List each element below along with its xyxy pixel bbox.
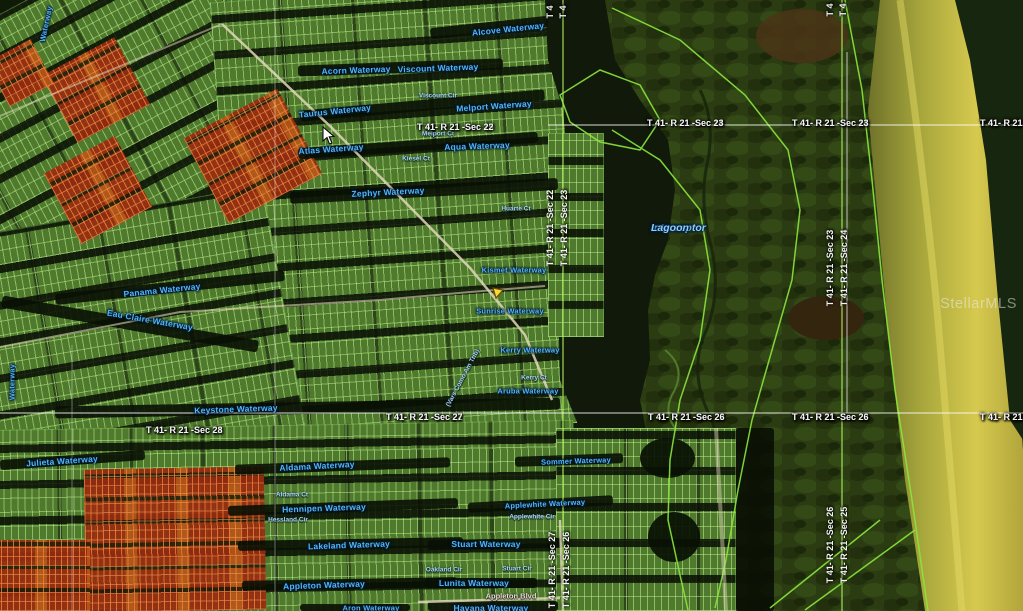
aerial-parcel-map[interactable]: Alcove WaterwayAcorn WaterwayViscount Wa…: [0, 0, 1023, 611]
grid-overlay-layer: [0, 0, 1023, 611]
cursor-icon: [322, 126, 336, 146]
watermark: StellarMLS: [940, 296, 1017, 312]
map-pin-icon[interactable]: [491, 286, 505, 300]
